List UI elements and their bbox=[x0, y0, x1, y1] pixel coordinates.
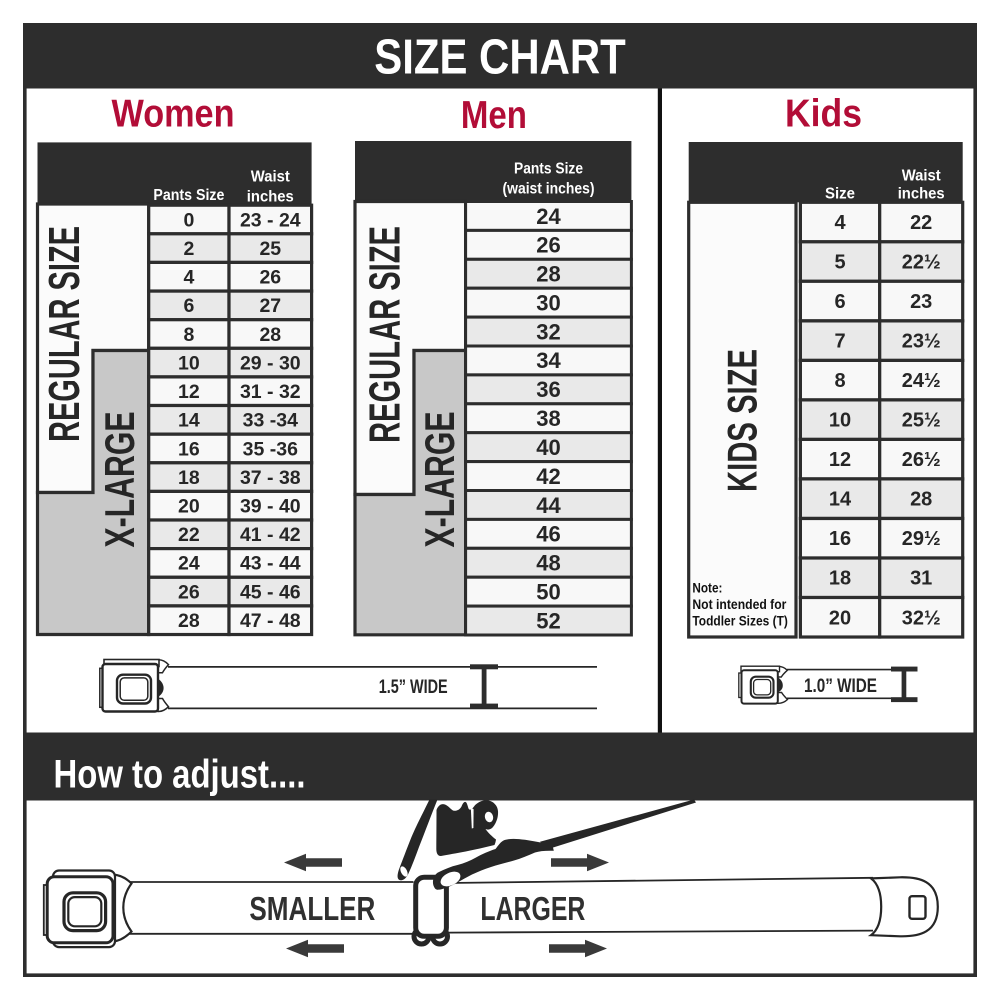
svg-text:31 - 32: 31 - 32 bbox=[240, 381, 301, 403]
svg-text:36: 36 bbox=[536, 377, 560, 402]
svg-text:4: 4 bbox=[183, 267, 194, 289]
svg-text:Not intended for: Not intended for bbox=[692, 597, 787, 612]
svg-text:28: 28 bbox=[536, 262, 560, 287]
svg-text:KIDS SIZE: KIDS SIZE bbox=[719, 349, 766, 492]
svg-text:6: 6 bbox=[834, 291, 845, 313]
svg-text:26: 26 bbox=[536, 233, 560, 258]
svg-text:34: 34 bbox=[536, 348, 561, 373]
svg-text:inches: inches bbox=[247, 189, 294, 206]
svg-text:12: 12 bbox=[829, 449, 851, 471]
svg-text:38: 38 bbox=[536, 406, 560, 431]
svg-text:40: 40 bbox=[536, 435, 560, 460]
svg-text:28: 28 bbox=[259, 324, 281, 346]
svg-text:7: 7 bbox=[834, 331, 845, 353]
svg-text:37 - 38: 37 - 38 bbox=[240, 467, 301, 489]
svg-text:35 -36: 35 -36 bbox=[243, 438, 298, 460]
svg-text:14: 14 bbox=[829, 489, 852, 511]
svg-text:14: 14 bbox=[178, 410, 200, 432]
svg-text:47 - 48: 47 - 48 bbox=[240, 610, 301, 632]
svg-text:4: 4 bbox=[834, 212, 846, 234]
svg-text:10: 10 bbox=[829, 410, 851, 432]
svg-text:Women: Women bbox=[112, 93, 235, 136]
svg-text:10: 10 bbox=[178, 352, 200, 374]
svg-text:26: 26 bbox=[259, 267, 281, 289]
svg-text:(waist inches): (waist inches) bbox=[503, 181, 595, 198]
svg-text:Note:: Note: bbox=[692, 580, 722, 595]
svg-text:46: 46 bbox=[536, 522, 560, 547]
svg-text:How to adjust....: How to adjust.... bbox=[54, 753, 306, 797]
svg-text:50: 50 bbox=[536, 580, 560, 605]
svg-text:26: 26 bbox=[178, 581, 200, 603]
svg-text:1.5” WIDE: 1.5” WIDE bbox=[379, 676, 448, 698]
svg-text:REGULAR SIZE: REGULAR SIZE bbox=[40, 226, 89, 442]
svg-text:29½: 29½ bbox=[902, 528, 941, 550]
svg-text:41 - 42: 41 - 42 bbox=[240, 524, 301, 546]
svg-text:0: 0 bbox=[183, 209, 194, 231]
svg-text:44: 44 bbox=[536, 493, 561, 518]
svg-text:32: 32 bbox=[536, 319, 560, 344]
svg-text:Waist: Waist bbox=[251, 169, 290, 186]
svg-text:25: 25 bbox=[259, 238, 281, 260]
svg-text:23½: 23½ bbox=[902, 331, 941, 353]
svg-text:16: 16 bbox=[829, 528, 851, 550]
svg-text:48: 48 bbox=[536, 551, 560, 576]
svg-text:Kids: Kids bbox=[785, 93, 862, 136]
svg-text:24½: 24½ bbox=[902, 370, 941, 392]
svg-text:X-LARGE: X-LARGE bbox=[96, 412, 143, 548]
svg-text:Toddler Sizes (T): Toddler Sizes (T) bbox=[692, 614, 788, 629]
svg-text:1.0” WIDE: 1.0” WIDE bbox=[804, 675, 877, 697]
svg-text:33 -34: 33 -34 bbox=[243, 410, 298, 432]
svg-text:39 - 40: 39 - 40 bbox=[240, 496, 301, 518]
svg-text:30: 30 bbox=[536, 290, 560, 315]
svg-text:inches: inches bbox=[898, 186, 945, 203]
svg-text:2: 2 bbox=[183, 238, 194, 260]
svg-text:27: 27 bbox=[259, 295, 281, 317]
svg-text:12: 12 bbox=[178, 381, 200, 403]
svg-text:24: 24 bbox=[536, 204, 561, 229]
svg-text:8: 8 bbox=[834, 370, 845, 392]
svg-text:52: 52 bbox=[536, 608, 560, 633]
svg-text:Size: Size bbox=[825, 186, 855, 203]
svg-text:LARGER: LARGER bbox=[480, 890, 585, 927]
svg-text:SMALLER: SMALLER bbox=[249, 890, 375, 927]
svg-text:22: 22 bbox=[178, 524, 200, 546]
svg-text:16: 16 bbox=[178, 438, 200, 460]
svg-text:Men: Men bbox=[461, 94, 527, 137]
svg-text:42: 42 bbox=[536, 464, 560, 489]
svg-text:5: 5 bbox=[834, 252, 845, 274]
svg-text:SIZE CHART: SIZE CHART bbox=[374, 31, 626, 85]
svg-text:22: 22 bbox=[910, 212, 932, 234]
svg-text:Pants Size: Pants Size bbox=[153, 187, 224, 204]
svg-text:43 - 44: 43 - 44 bbox=[240, 553, 301, 575]
svg-text:20: 20 bbox=[178, 496, 200, 518]
svg-text:22½: 22½ bbox=[902, 252, 941, 274]
svg-text:29 - 30: 29 - 30 bbox=[240, 352, 301, 374]
svg-text:23 - 24: 23 - 24 bbox=[240, 209, 301, 231]
svg-text:23: 23 bbox=[910, 291, 932, 313]
svg-text:25½: 25½ bbox=[902, 410, 941, 432]
svg-text:28: 28 bbox=[178, 610, 200, 632]
svg-text:18: 18 bbox=[178, 467, 200, 489]
svg-text:45 - 46: 45 - 46 bbox=[240, 581, 301, 603]
svg-text:REGULAR SIZE: REGULAR SIZE bbox=[361, 226, 410, 443]
svg-text:18: 18 bbox=[829, 568, 851, 590]
svg-text:31: 31 bbox=[910, 568, 932, 590]
svg-text:28: 28 bbox=[910, 489, 932, 511]
svg-text:26½: 26½ bbox=[902, 449, 941, 471]
svg-text:24: 24 bbox=[178, 553, 200, 575]
svg-text:Waist: Waist bbox=[902, 168, 941, 185]
svg-text:20: 20 bbox=[829, 607, 851, 629]
svg-text:Pants Size: Pants Size bbox=[514, 161, 583, 178]
svg-text:X-LARGE: X-LARGE bbox=[416, 412, 463, 548]
svg-text:8: 8 bbox=[183, 324, 194, 346]
svg-text:6: 6 bbox=[183, 295, 194, 317]
svg-text:32½: 32½ bbox=[902, 607, 941, 629]
